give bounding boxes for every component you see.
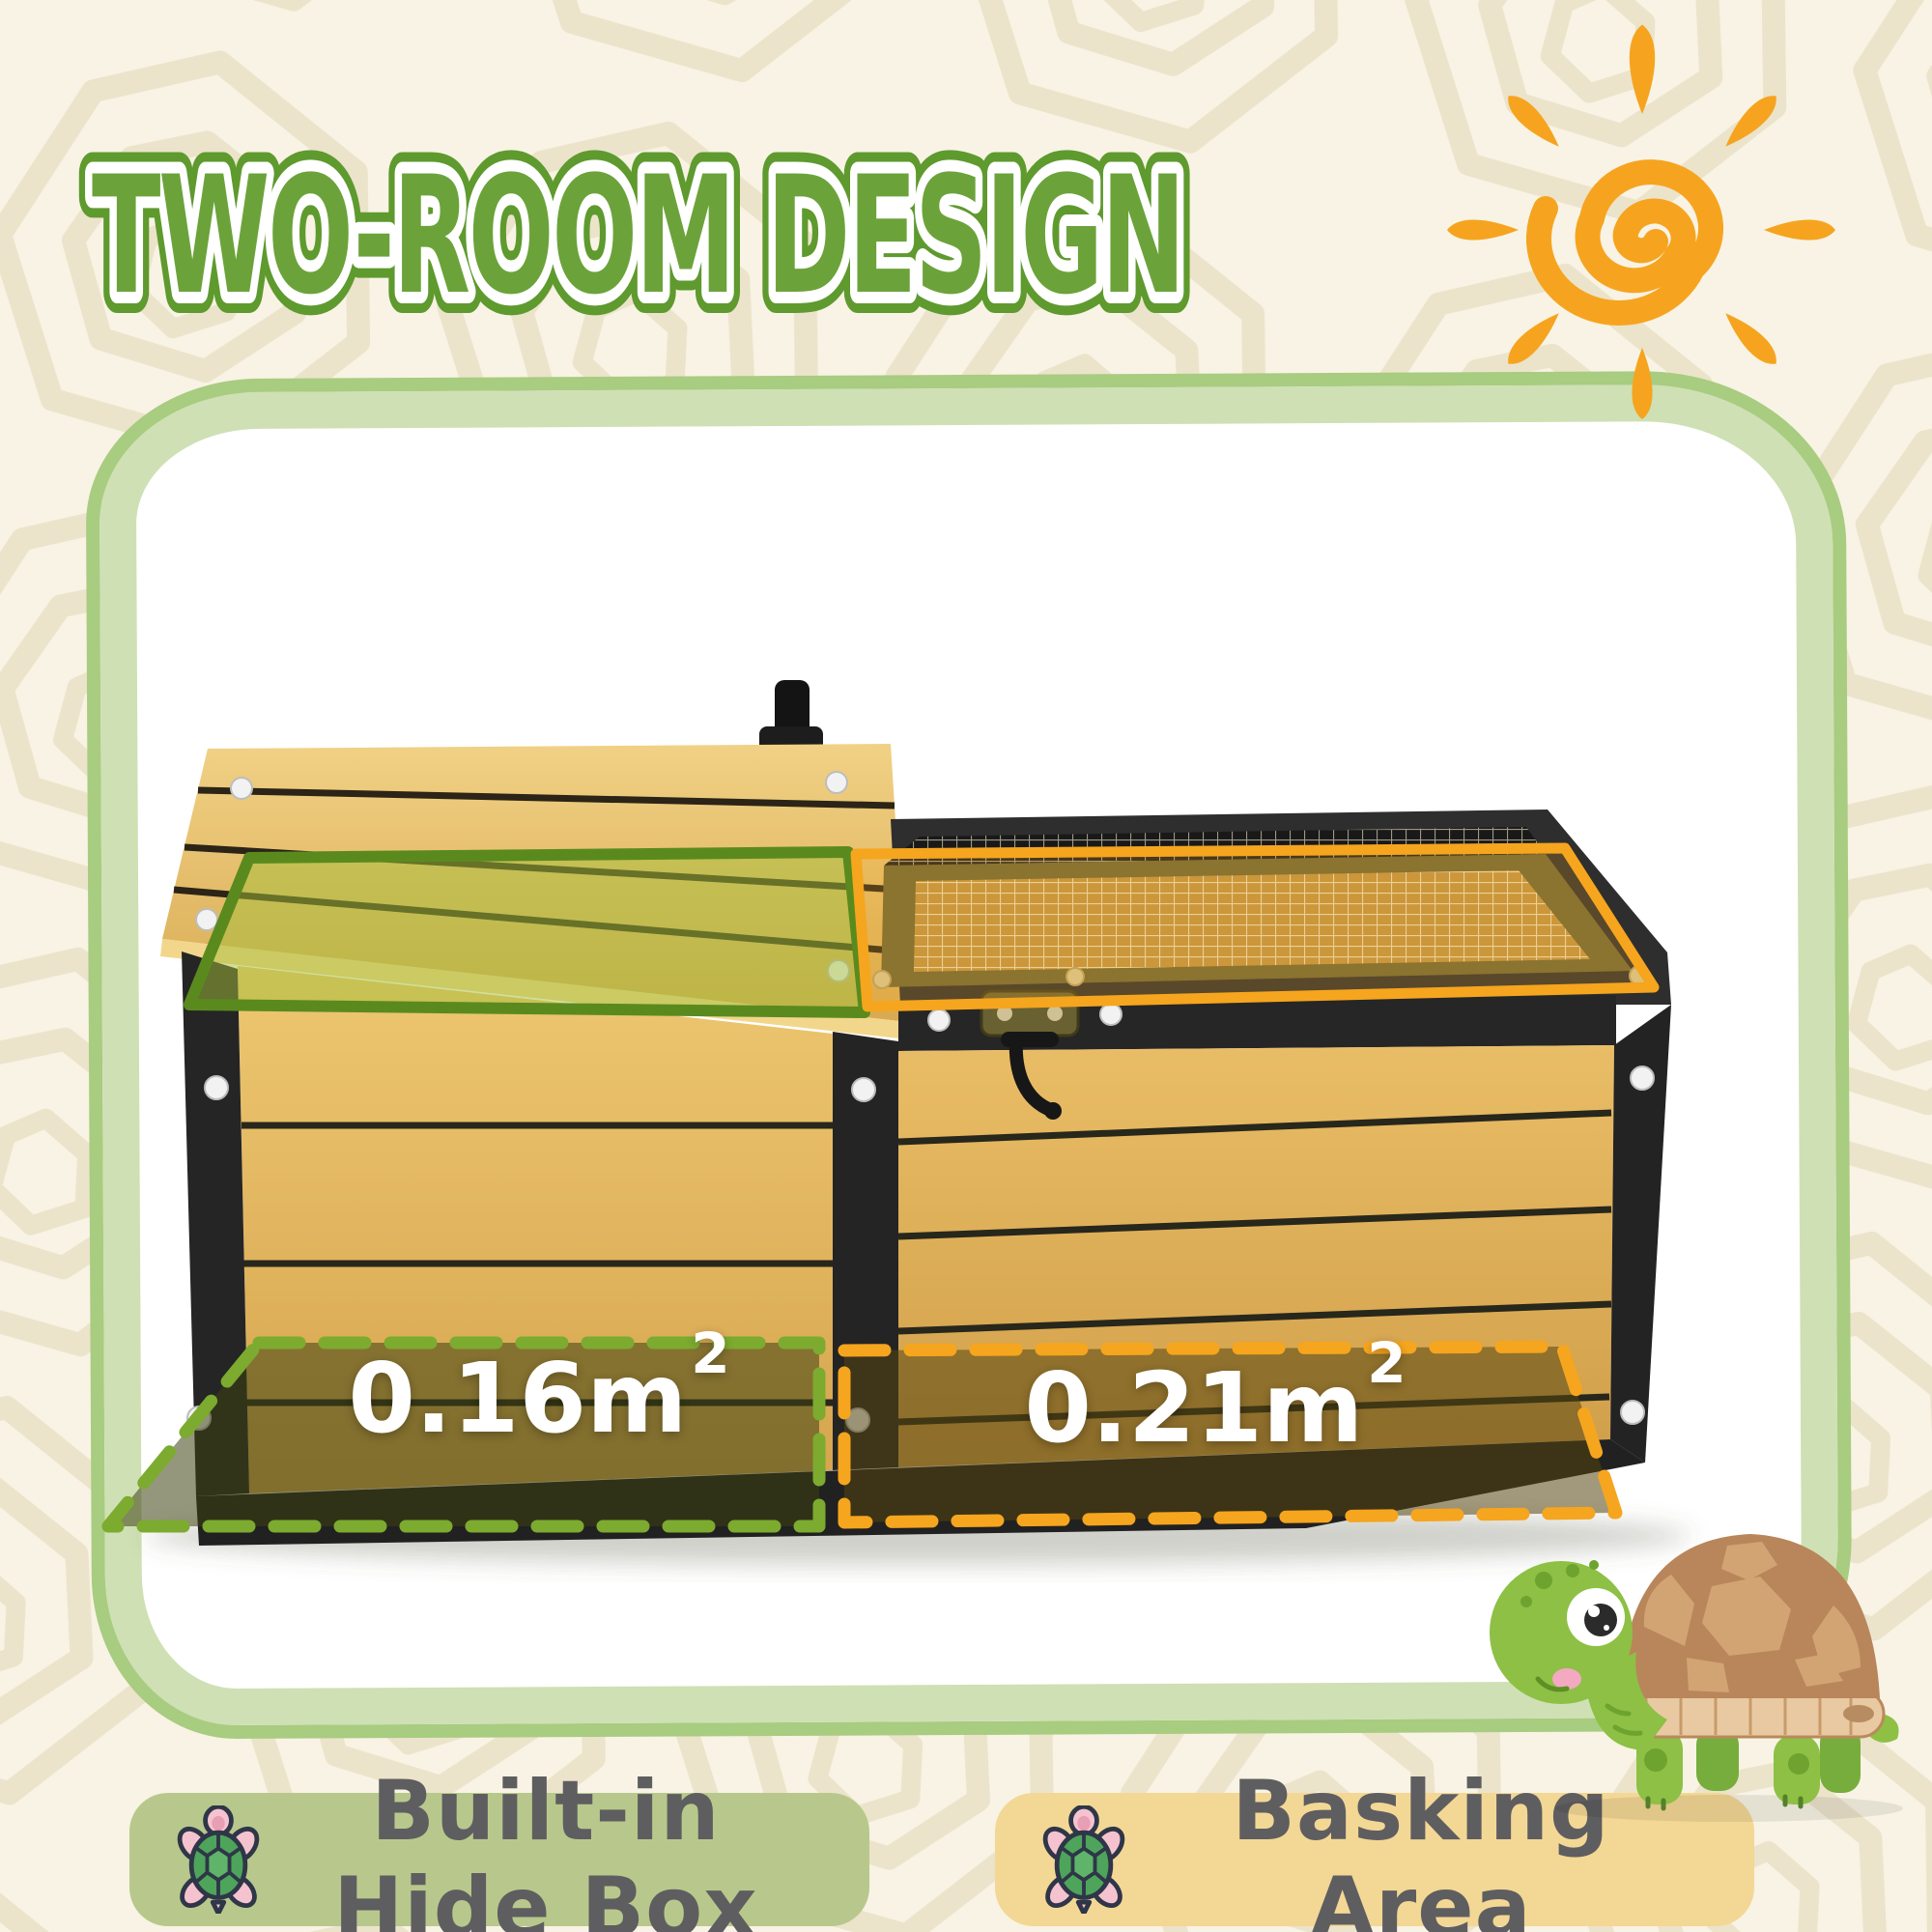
legend-hide-box: Built-in Hide Box [129,1793,869,1926]
turtle-mascot [1476,1499,1930,1828]
hide-box-area-value: 0.16m [348,1350,687,1447]
basking-top-overlay [856,848,1654,1007]
basking-area-value: 0.21m [1024,1360,1363,1457]
turtle-head [1490,1560,1633,1704]
legend-hide-box-label: Built-in Hide Box [265,1763,827,1932]
infographic-canvas: TWO-ROOM DESIGN TWO-ROOM DESIGN [0,0,1932,1932]
hide-roof-overlay [189,852,865,1012]
turtle-icon [172,1805,265,1914]
basking-area-label: 0.21m 2 [954,1360,1476,1457]
page-title: TWO-ROOM DESIGN TWO-ROOM DESIGN [48,68,1401,357]
basking-area-sup: 2 [1367,1335,1406,1391]
turtle-icon [1037,1805,1130,1914]
hide-box-area-sup: 2 [691,1325,729,1381]
hide-box-area-label: 0.16m 2 [288,1350,790,1447]
page-title-text: TWO-ROOM DESIGN [92,141,1183,330]
